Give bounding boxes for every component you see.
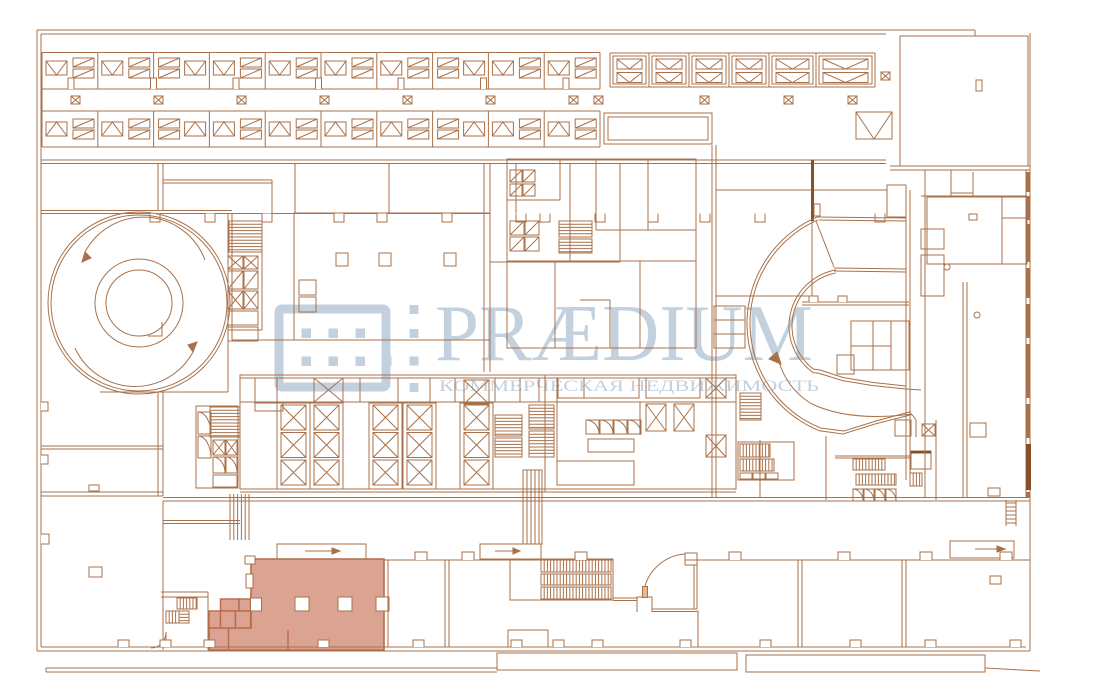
svg-text:PRÆDIUM: PRÆDIUM [435,288,813,378]
